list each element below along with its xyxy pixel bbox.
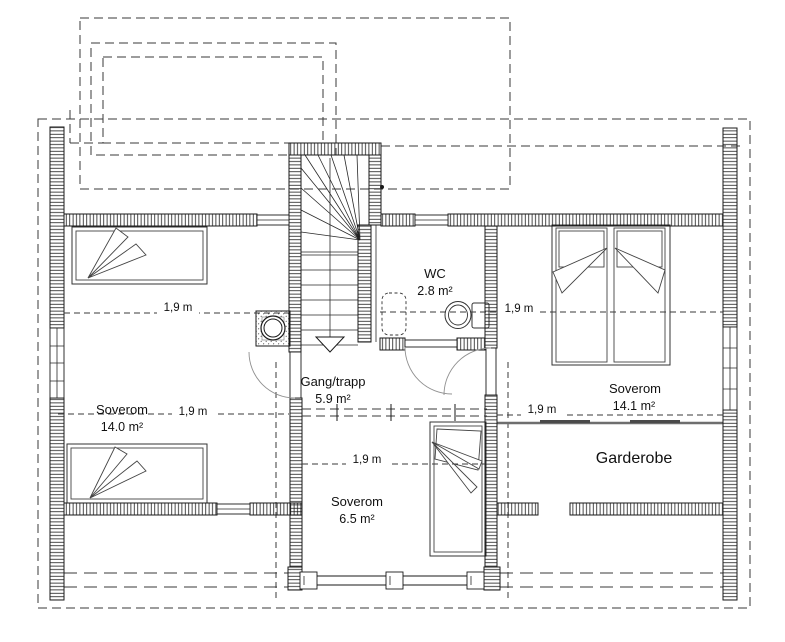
room-label-soverom-center: Soverom <box>331 494 383 509</box>
bed-single-top-left <box>72 227 207 284</box>
floor-plan-drawing: Soverom 14.0 m² Gang/trapp 5.9 m² Sovero… <box>0 0 785 642</box>
door-leaf <box>405 340 457 347</box>
chimney <box>256 311 290 346</box>
wall-top-wc-left <box>381 214 415 226</box>
wall-top-right <box>448 214 723 226</box>
wall-right-lower <box>723 410 737 600</box>
room-label-wc: WC <box>424 266 446 281</box>
bed-single-center <box>430 422 486 556</box>
door-leaf <box>486 348 496 395</box>
room-label-soverom-right: Soverom <box>609 381 661 396</box>
room-area-soverom-left: 14.0 m² <box>101 420 143 434</box>
dim-label-left-lower: 1,9 m <box>179 406 208 418</box>
dim-label-right-lower: 1,9 m <box>528 404 557 416</box>
room-area-gang-trapp: 5.9 m² <box>315 392 350 406</box>
dim-label-right-upper: 1,9 m <box>505 303 534 315</box>
wc-right-wall <box>485 226 497 348</box>
floor-plan-sheet: Soverom 14.0 m² Gang/trapp 5.9 m² Sovero… <box>0 0 785 642</box>
wall-left-lower <box>50 398 64 600</box>
dim-label-center: 1,9 m <box>353 454 382 466</box>
bed-double-right <box>552 225 670 365</box>
shaft-top-wall <box>289 143 381 155</box>
left-room-bottom-wall-2 <box>250 503 302 515</box>
window-left-wall <box>50 328 64 398</box>
stair-wc-wall <box>358 225 371 342</box>
room-label-gang-trapp: Gang/trapp <box>300 374 365 389</box>
wall-top-left <box>64 214 257 226</box>
shaft-left-wall <box>289 155 301 352</box>
wc-bottom-wall-left <box>380 338 405 350</box>
dim-label-left-upper: 1,9 m <box>164 302 193 314</box>
window-wc-top-wall <box>415 215 448 225</box>
window-right-wall <box>723 327 737 410</box>
wall-right-upper <box>723 128 737 327</box>
garderobe-bottom-wall-1 <box>497 503 538 515</box>
dormer-stub-right <box>484 567 500 590</box>
window-top-wall-left <box>257 215 289 225</box>
door-leaf <box>290 352 301 398</box>
flue-outer <box>261 316 285 340</box>
room-area-wc: 2.8 m² <box>417 284 452 298</box>
room-area-soverom-right: 14.1 m² <box>613 399 655 413</box>
bed-single-bottom-left <box>67 444 207 503</box>
shaft-right-wall-upper <box>369 155 381 225</box>
center-room-right-wall <box>485 395 497 567</box>
wc-bottom-wall-right <box>457 338 485 350</box>
room-label-garderobe: Garderobe <box>596 450 673 467</box>
room-area-soverom-center: 6.5 m² <box>339 512 374 526</box>
window-left-bottom-wall <box>217 504 250 514</box>
garderobe-bottom-wall-2 <box>570 503 723 515</box>
hall-left-wall <box>290 398 302 567</box>
left-room-bottom-wall-1 <box>64 503 217 515</box>
room-label-soverom-left: Soverom <box>96 402 148 417</box>
wall-left-upper <box>50 127 64 328</box>
